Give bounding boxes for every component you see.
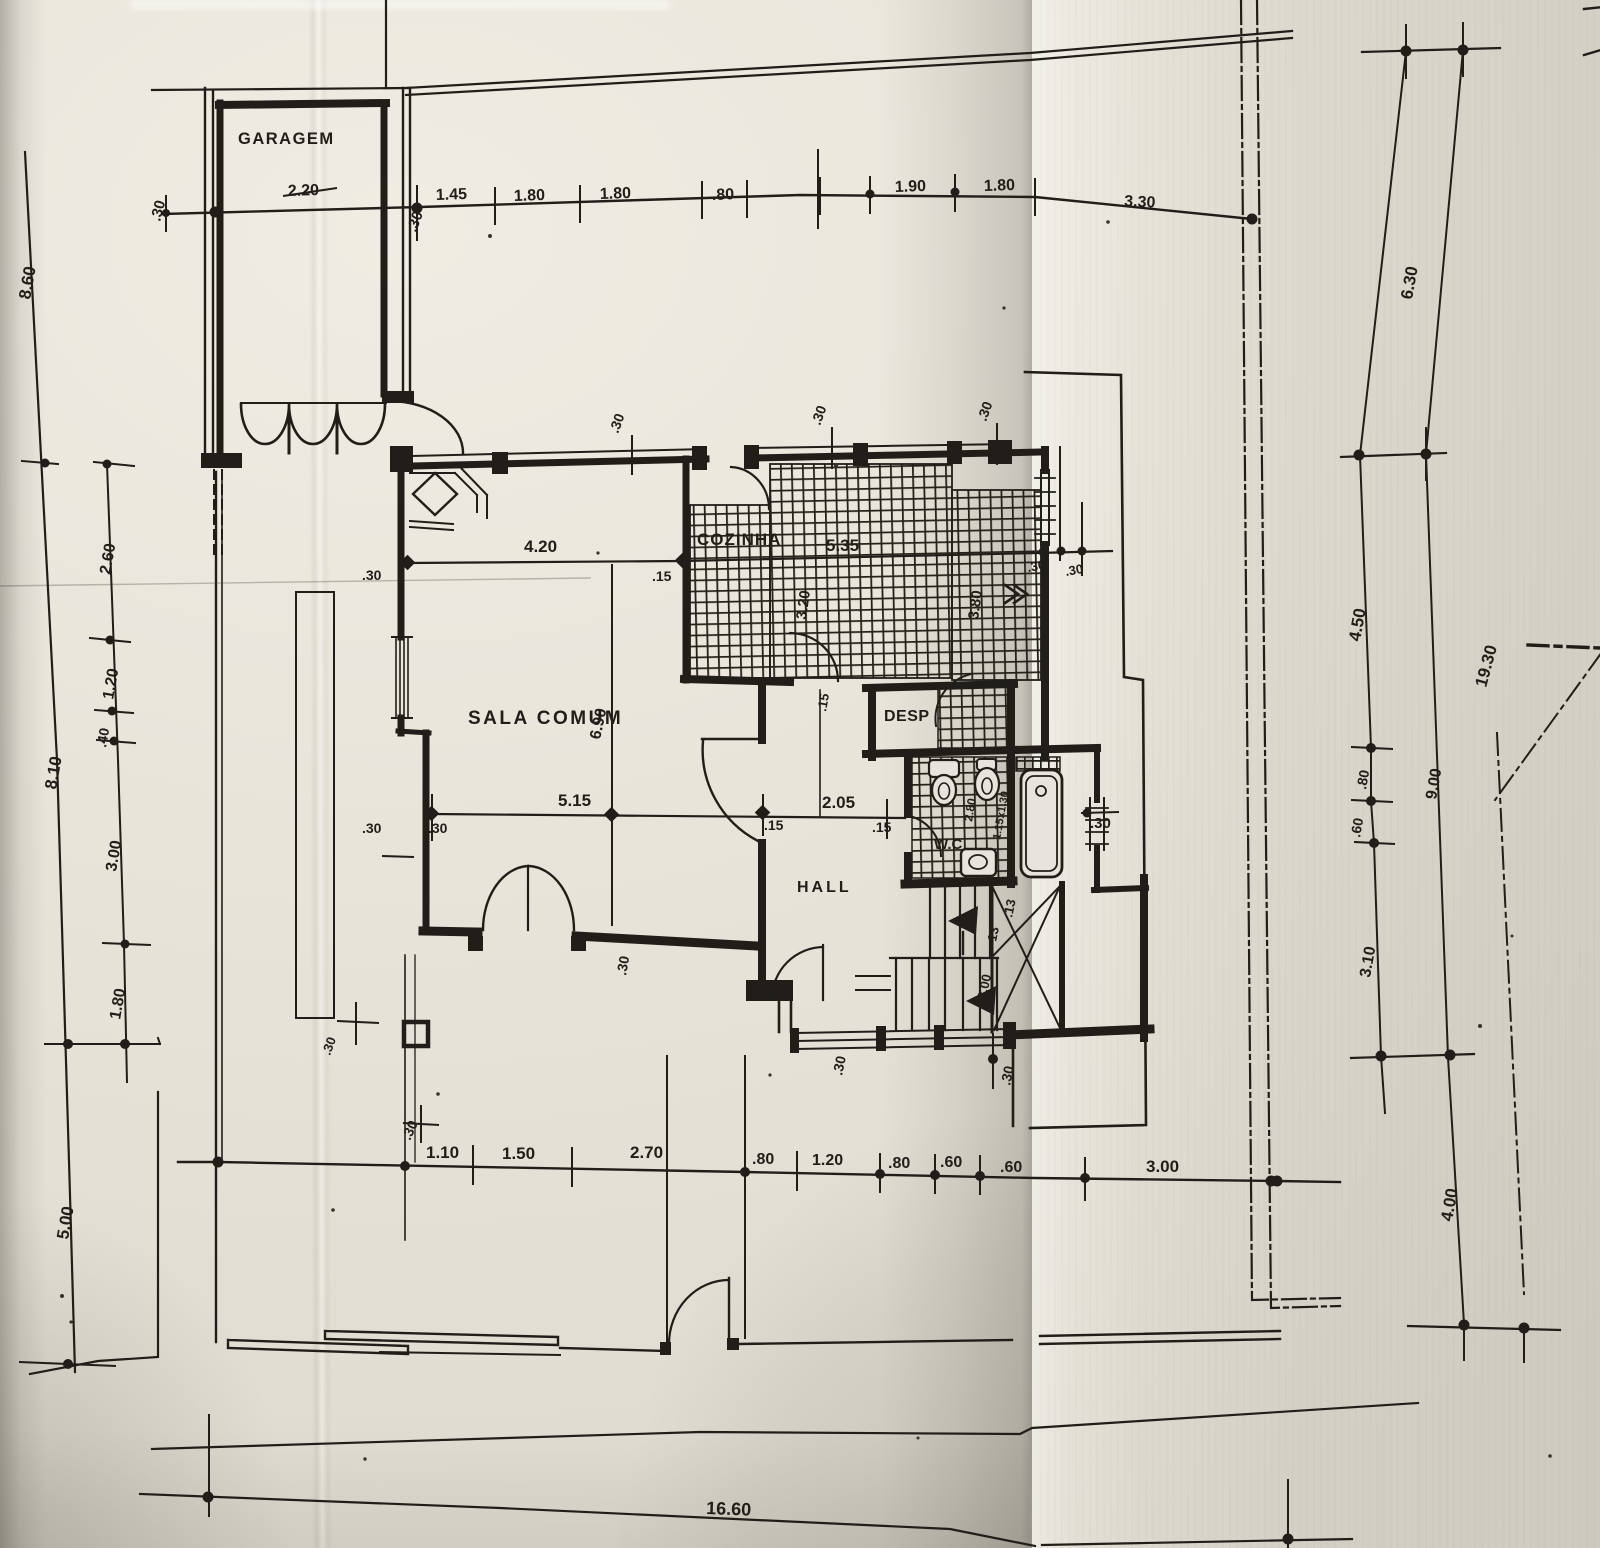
- svg-text:.13: .13: [1000, 898, 1018, 919]
- svg-text:.60: .60: [1347, 816, 1366, 838]
- svg-text:6.30: 6.30: [1397, 265, 1421, 301]
- svg-text:.30: .30: [829, 1054, 849, 1077]
- svg-text:.30: .30: [1090, 815, 1111, 832]
- svg-text:1.80: 1.80: [514, 187, 546, 205]
- svg-text:GARAGEM: GARAGEM: [238, 130, 335, 148]
- svg-text:5.00: 5.00: [53, 1205, 77, 1241]
- svg-text:1.20: 1.20: [812, 1152, 843, 1169]
- svg-text:.30: .30: [613, 954, 632, 976]
- svg-text:.30: .30: [362, 567, 382, 583]
- svg-text:.80: .80: [888, 1155, 910, 1172]
- svg-text:.30: .30: [404, 209, 427, 234]
- svg-text:1.80: 1.80: [600, 185, 632, 203]
- svg-text:.60: .60: [1000, 1159, 1022, 1176]
- svg-text:.30: .30: [428, 820, 448, 836]
- svg-text:.30: .30: [808, 403, 830, 427]
- svg-text:HALL: HALL: [797, 879, 852, 896]
- svg-text:2.05: 2.05: [822, 793, 855, 812]
- svg-text:16.60: 16.60: [706, 1498, 752, 1520]
- svg-text:.15: .15: [872, 819, 892, 835]
- svg-text:.30: .30: [974, 399, 996, 423]
- svg-text:DESP: DESP: [884, 708, 930, 725]
- svg-text:19.30: 19.30: [1472, 643, 1501, 689]
- svg-text:.80: .80: [752, 1151, 774, 1168]
- svg-text:4.20: 4.20: [524, 537, 557, 556]
- svg-text:8.10: 8.10: [41, 755, 65, 791]
- svg-text:1.90: 1.90: [895, 178, 927, 196]
- svg-text:.30: .30: [606, 411, 628, 435]
- svg-text:.30: .30: [398, 1118, 421, 1143]
- svg-text:.30: .30: [1026, 557, 1046, 575]
- svg-text:2.60: 2.60: [97, 542, 119, 576]
- svg-text:1.45: 1.45: [436, 186, 468, 204]
- svg-text:.80: .80: [712, 186, 735, 204]
- svg-text:5.35: 5.35: [826, 536, 859, 555]
- svg-text:5.15: 5.15: [558, 791, 591, 810]
- svg-text:3.10: 3.10: [1357, 945, 1379, 979]
- svg-text:.15: .15: [652, 568, 672, 584]
- svg-text:2.70: 2.70: [630, 1143, 663, 1162]
- svg-text:COZINHA: COZINHA: [697, 530, 781, 549]
- svg-text:.30: .30: [319, 1035, 339, 1057]
- svg-text:8.60: 8.60: [15, 265, 39, 301]
- svg-text:.80: .80: [1353, 768, 1372, 790]
- svg-text:W.C: W.C: [934, 836, 962, 853]
- svg-text:1.80: 1.80: [984, 177, 1016, 195]
- svg-text:.60: .60: [940, 1154, 962, 1171]
- svg-text:1.20: 1.20: [100, 667, 122, 701]
- svg-text:13: 13: [984, 925, 1002, 942]
- svg-text:3.30: 3.30: [1124, 193, 1156, 212]
- svg-text:.15: .15: [764, 817, 784, 833]
- svg-text:.40: .40: [93, 726, 112, 748]
- svg-text:.15: .15: [814, 692, 832, 712]
- svg-text:.30: .30: [362, 820, 382, 836]
- svg-text:3.00: 3.00: [1146, 1157, 1179, 1176]
- svg-text:1.10: 1.10: [426, 1143, 459, 1162]
- svg-text:1.50: 1.50: [502, 1144, 535, 1163]
- svg-text:.30: .30: [1064, 561, 1084, 579]
- svg-text:9.00: 9.00: [1423, 767, 1445, 801]
